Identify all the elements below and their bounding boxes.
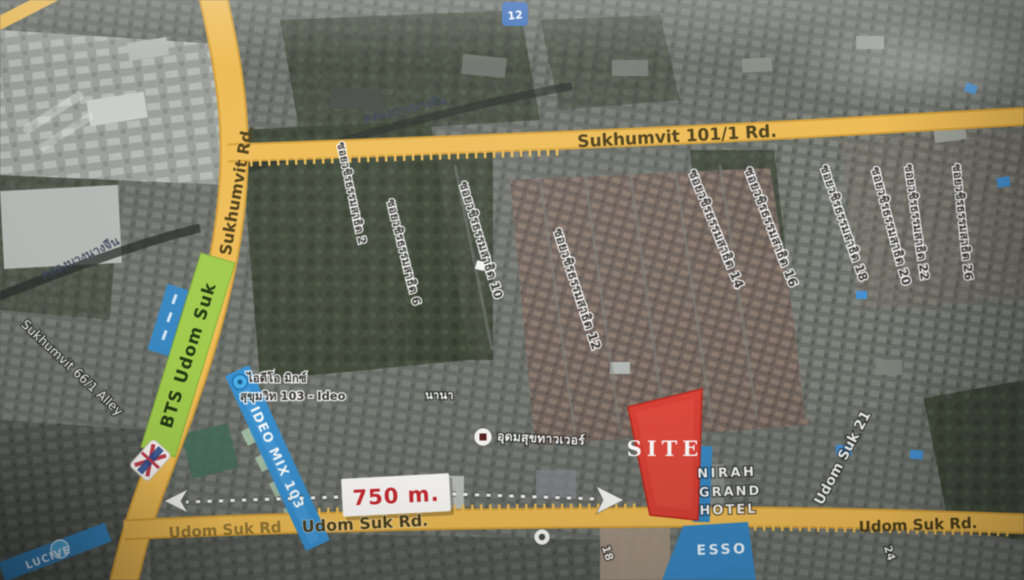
map-photo: BTS Udom Suk SITE 750 m.: [0, 0, 1024, 580]
map-chip-decor: [856, 291, 867, 299]
poi-marker-center: [539, 534, 545, 540]
site-label: SITE: [627, 436, 704, 461]
hotel-label: NIRAH GRAND HOTEL: [697, 465, 762, 519]
map-chip-label: 12: [507, 8, 524, 23]
hotel-label-line1: NIRAH: [697, 465, 757, 482]
distance-label: 750 m.: [352, 482, 440, 511]
esso-label: ESSO: [696, 541, 748, 559]
ideo-side-note: นานา: [425, 388, 454, 402]
ideo-thai-label-line2: สุขุมวิท 103 - Ideo: [240, 389, 346, 404]
hotel-label-line3: HOTEL: [699, 502, 757, 519]
satellite-map: BTS Udom Suk SITE 750 m.: [0, 0, 1024, 580]
map-chip-decor: [910, 449, 924, 459]
ideo-pin-icon-hole: [238, 380, 243, 385]
ideo-thai-label-line1: ไอดีโอ มิกซ์: [245, 370, 307, 385]
poi-marker-center: [480, 434, 487, 441]
hotel-label-line2: GRAND: [699, 484, 762, 501]
